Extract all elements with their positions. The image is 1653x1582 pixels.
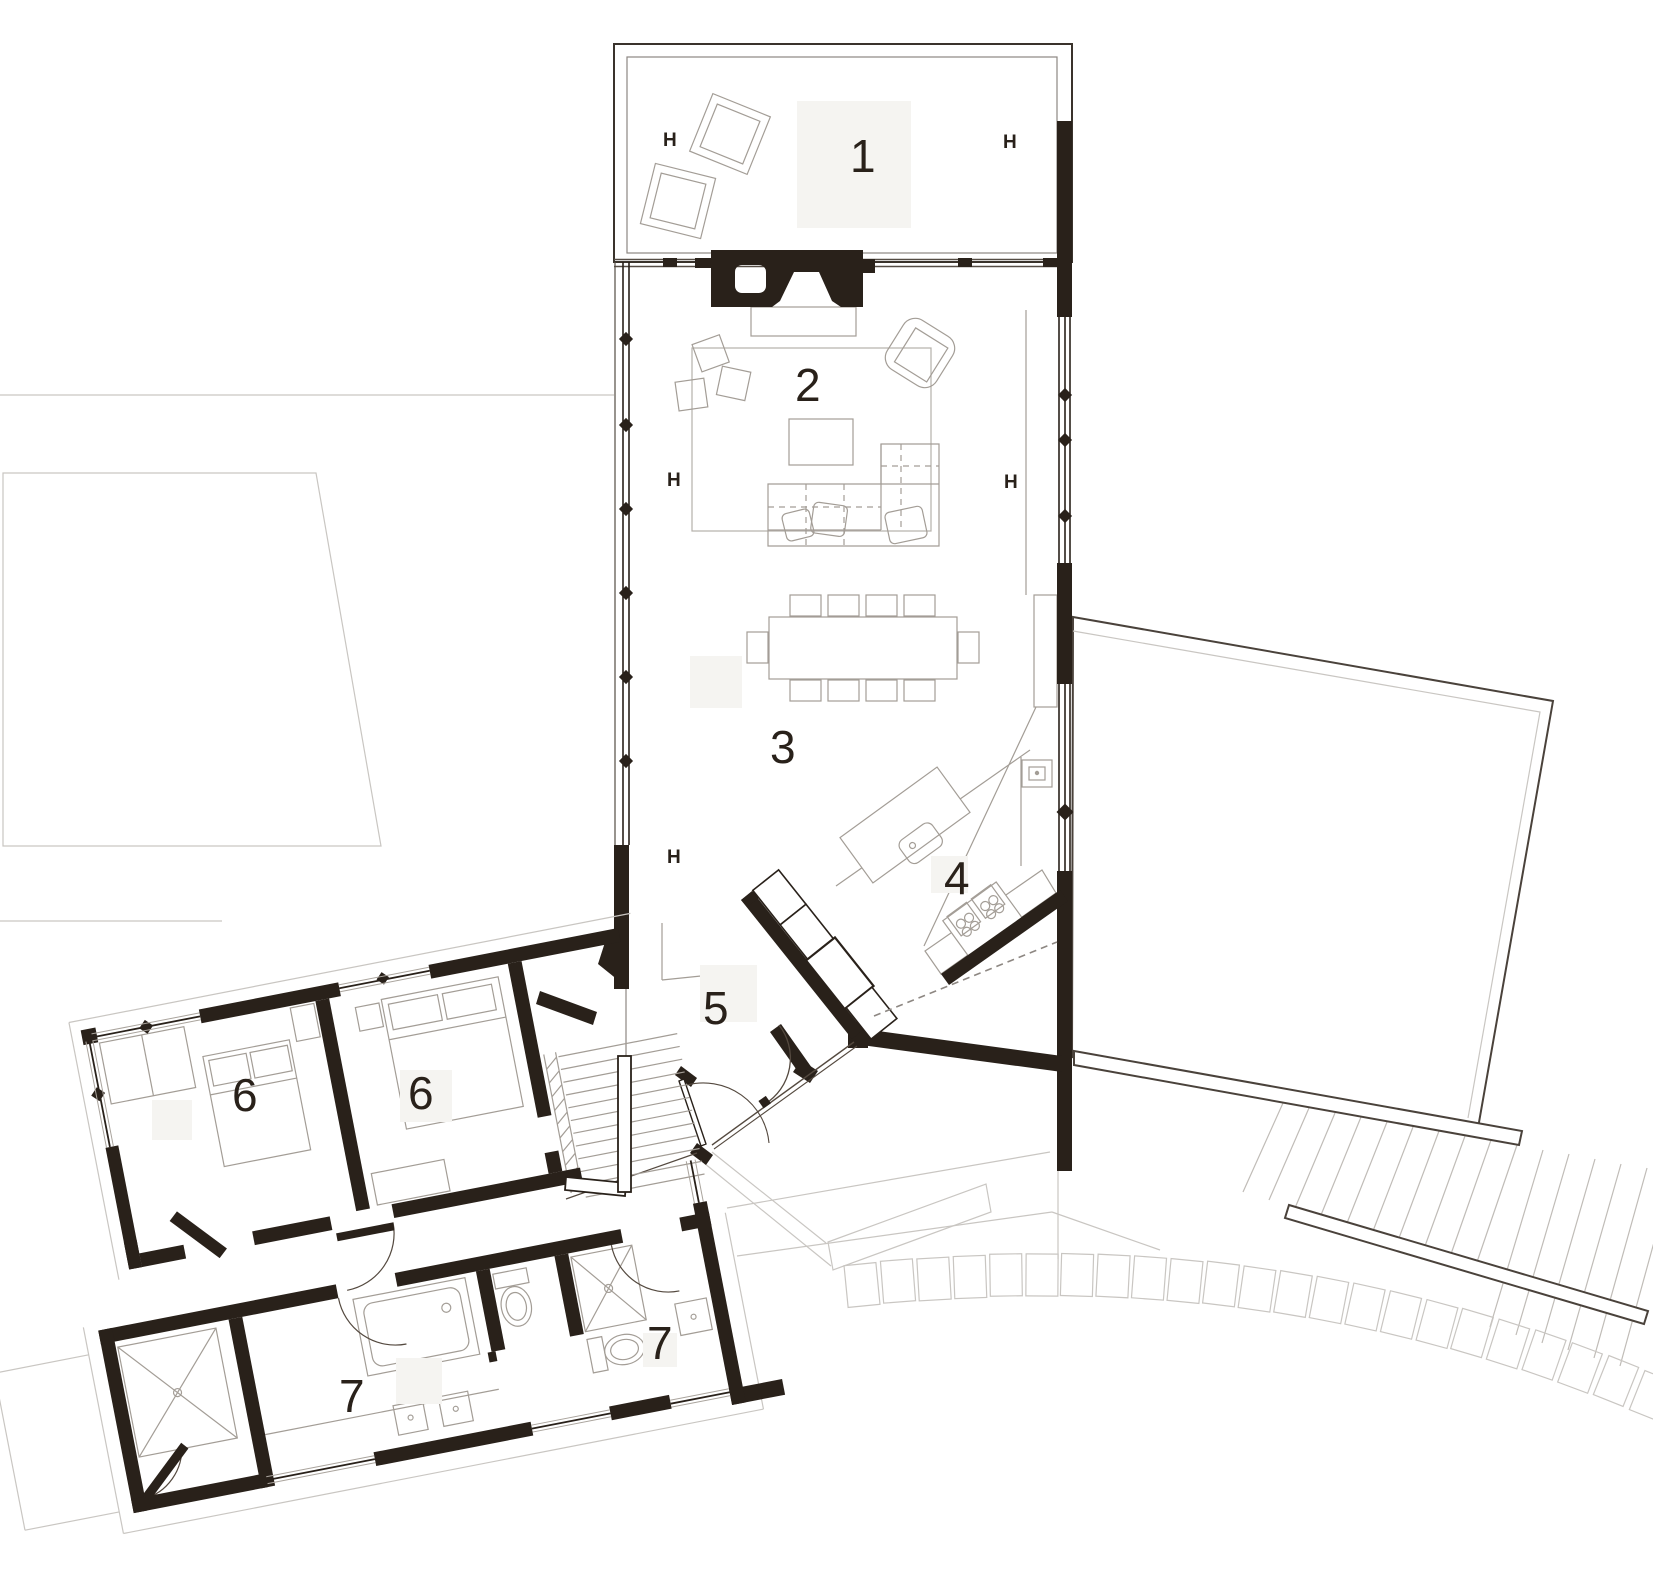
svg-text:H: H bbox=[667, 847, 681, 868]
svg-text:7: 7 bbox=[339, 1370, 365, 1422]
svg-text:3: 3 bbox=[770, 721, 796, 773]
svg-text:H: H bbox=[663, 130, 677, 151]
svg-text:2: 2 bbox=[795, 359, 821, 411]
svg-text:H: H bbox=[667, 470, 681, 491]
svg-text:1: 1 bbox=[850, 130, 876, 182]
svg-text:4: 4 bbox=[944, 852, 970, 904]
svg-text:6: 6 bbox=[408, 1067, 434, 1119]
svg-text:6: 6 bbox=[232, 1069, 258, 1121]
svg-text:H: H bbox=[1004, 472, 1018, 493]
svg-text:5: 5 bbox=[703, 982, 729, 1034]
svg-text:H: H bbox=[1003, 132, 1017, 153]
svg-text:7: 7 bbox=[647, 1317, 673, 1369]
